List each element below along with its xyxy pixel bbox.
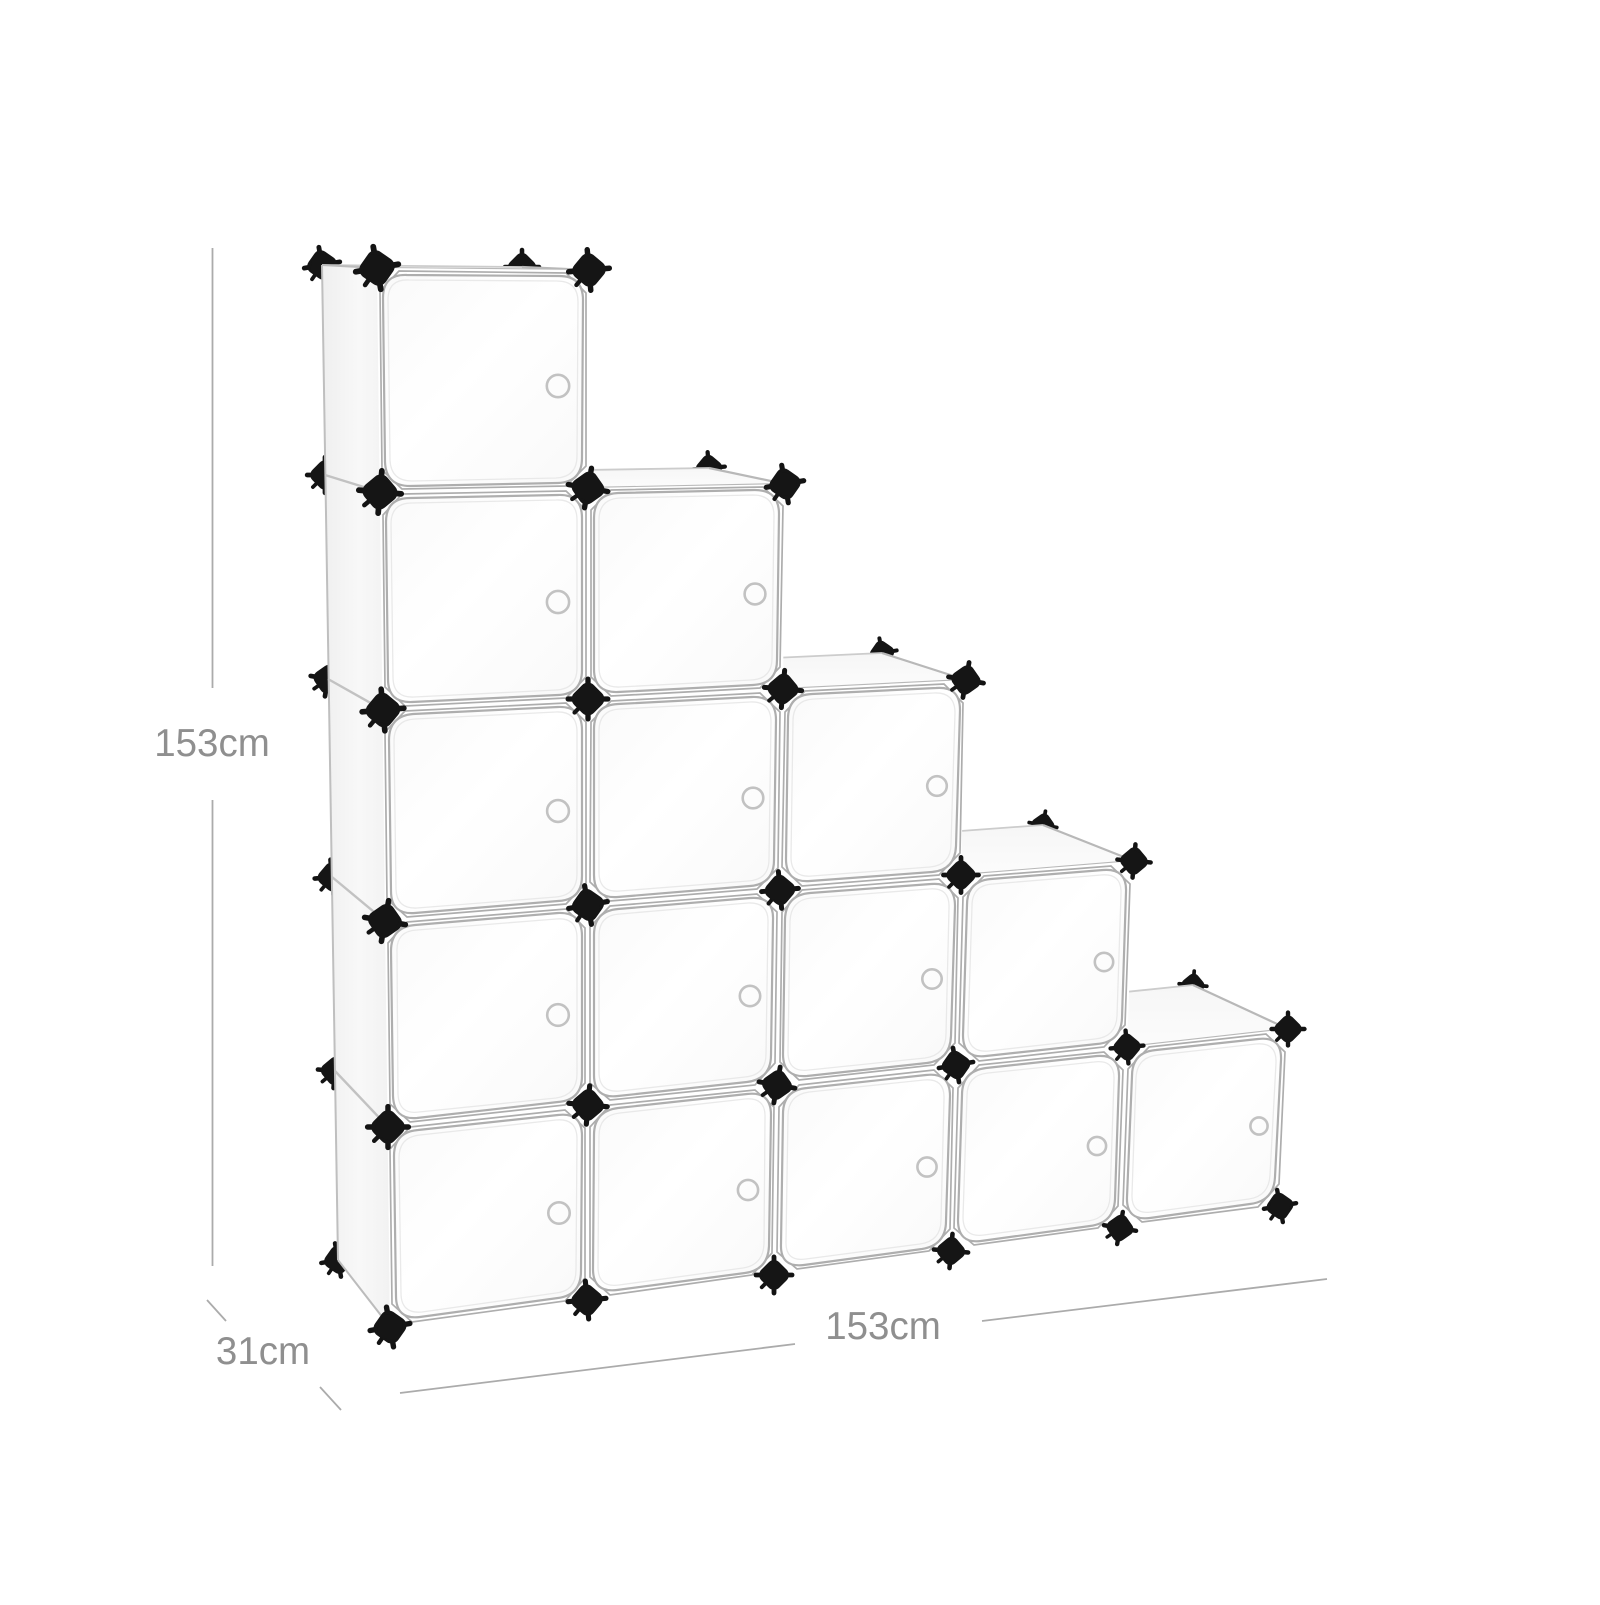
svg-text:31cm: 31cm (216, 1330, 310, 1373)
svg-text:153cm: 153cm (825, 1305, 941, 1348)
svg-text:153cm: 153cm (154, 722, 270, 765)
